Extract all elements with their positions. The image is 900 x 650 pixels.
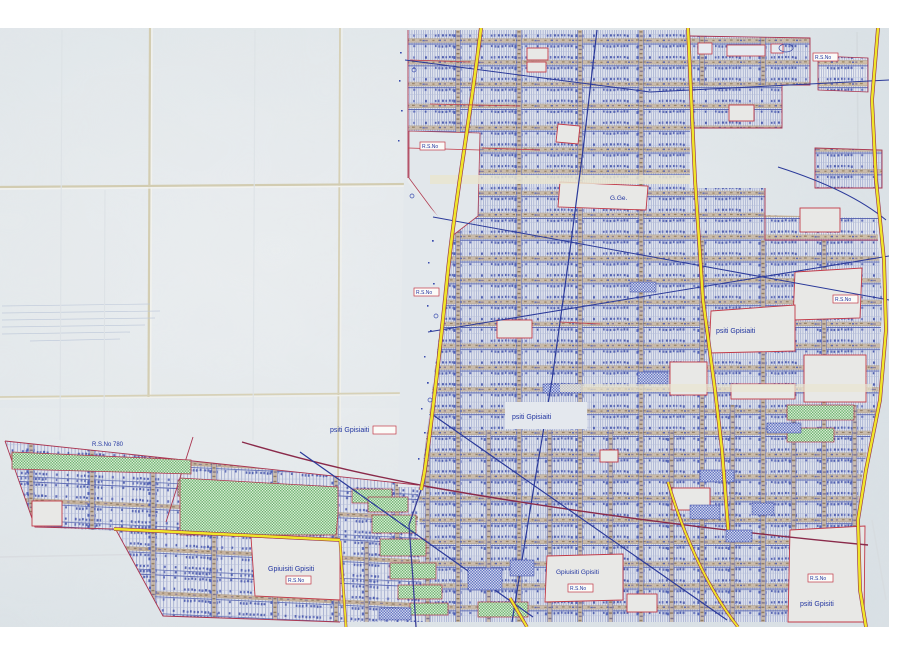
svg-text:psiti Gpisiaiti: psiti Gpisiaiti <box>716 328 756 335</box>
svg-text:Gpiuisiti Gpisiti: Gpiuisiti Gpisiti <box>556 569 599 576</box>
svg-text:Gpiuisiti Gpisiti: Gpiuisiti Gpisiti <box>268 566 315 573</box>
svg-text:R.S.No: R.S.No <box>810 576 826 582</box>
svg-text:G.Ge.: G.Ge. <box>610 195 628 202</box>
svg-text:R.S.No: R.S.No <box>422 144 438 150</box>
svg-text:R.S.No: R.S.No <box>570 586 586 592</box>
svg-text:R.S.No: R.S.No <box>416 290 432 296</box>
svg-text:R.S.No 780: R.S.No 780 <box>92 442 124 448</box>
svg-text:psiti Gpisiaiti: psiti Gpisiaiti <box>512 414 552 421</box>
svg-text:R.S.No: R.S.No <box>288 578 304 584</box>
svg-text:psiti Gpisiti: psiti Gpisiti <box>800 601 834 608</box>
svg-text:psiti Gpisiaiti: psiti Gpisiaiti <box>330 427 370 434</box>
svg-text:R.S.No: R.S.No <box>835 297 851 303</box>
svg-text:R.S.No: R.S.No <box>815 55 831 61</box>
